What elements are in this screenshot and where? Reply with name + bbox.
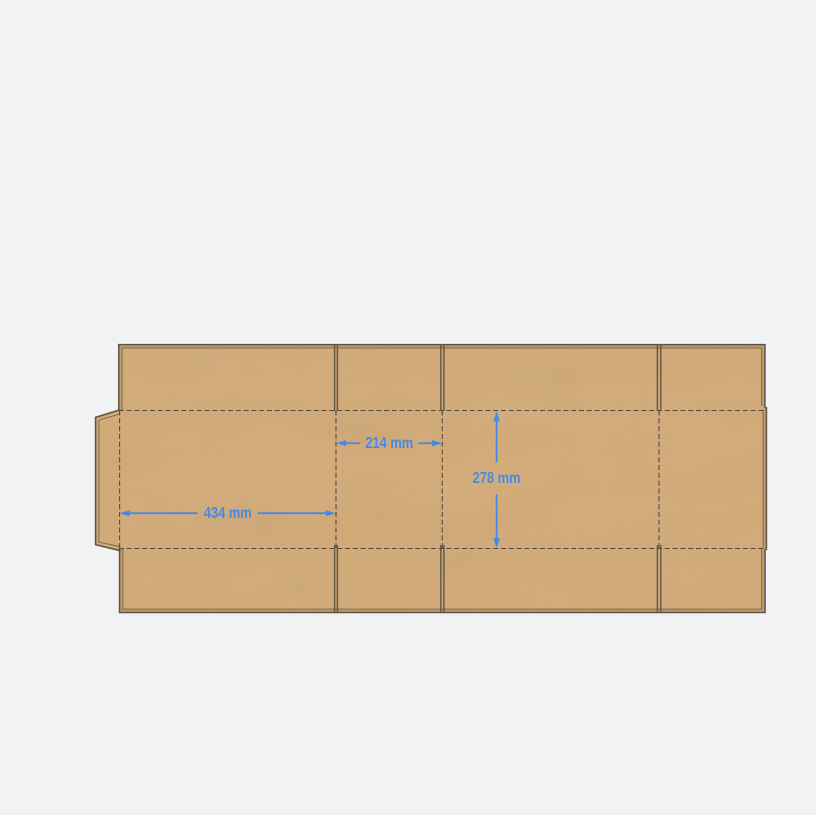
svg-text:278 mm: 278 mm [473, 470, 521, 487]
svg-text:434 mm: 434 mm [204, 505, 252, 522]
svg-text:214 mm: 214 mm [365, 435, 413, 452]
